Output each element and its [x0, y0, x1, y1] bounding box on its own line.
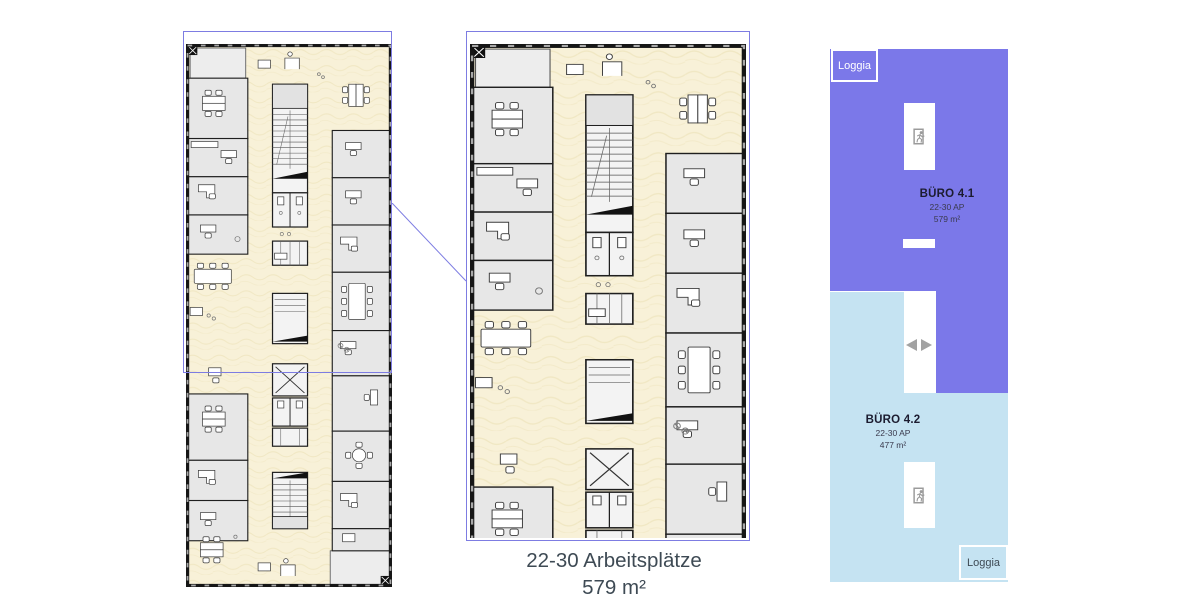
stairwell-shaft [904, 292, 935, 393]
unit-block-buero41-extension[interactable] [936, 291, 1008, 393]
unit-name: BÜRO 4.1 [888, 187, 1006, 201]
floorplan-viewer: 22-30 Arbeitsplätze 579 m² [0, 0, 1200, 600]
emergency-exit-icon [913, 487, 926, 504]
unit-workplaces: 22-30 AP [834, 428, 952, 439]
unit-label-buero42: BÜRO 4.2 22-30 AP 477 m² [834, 413, 952, 451]
arrow-right-icon[interactable] [921, 339, 932, 351]
loggia-label: Loggia [838, 60, 871, 72]
loggia-badge-41: Loggia [831, 49, 878, 82]
selection-rectangle [183, 31, 392, 373]
unit-block-buero42-upper[interactable] [830, 292, 904, 393]
connector-line [392, 203, 466, 282]
unit-workplaces: 22-30 AP [888, 202, 1006, 213]
emergency-exit-icon [913, 128, 926, 145]
unit-area: 579 m² [888, 214, 1006, 225]
loggia-badge-42: Loggia [959, 545, 1008, 580]
caption-area: 579 m² [468, 574, 760, 600]
loggia-label: Loggia [967, 557, 1000, 569]
unit-area: 477 m² [834, 440, 952, 451]
door-notch [903, 239, 935, 248]
caption-workplaces: 22-30 Arbeitsplätze [468, 547, 760, 574]
floor-plan-detail [470, 44, 746, 538]
arrow-left-icon[interactable] [906, 339, 917, 351]
stairwell-cutout-42 [904, 462, 935, 528]
unit-label-buero41: BÜRO 4.1 22-30 AP 579 m² [888, 187, 1006, 225]
plan-caption: 22-30 Arbeitsplätze 579 m² [468, 547, 760, 600]
unit-schematic: Loggia Loggia BÜRO 4.1 22-30 AP 579 m² B… [828, 47, 1010, 584]
unit-name: BÜRO 4.2 [834, 413, 952, 427]
unit-block-buero41[interactable] [830, 49, 1008, 291]
stairwell-cutout-41 [904, 103, 935, 170]
